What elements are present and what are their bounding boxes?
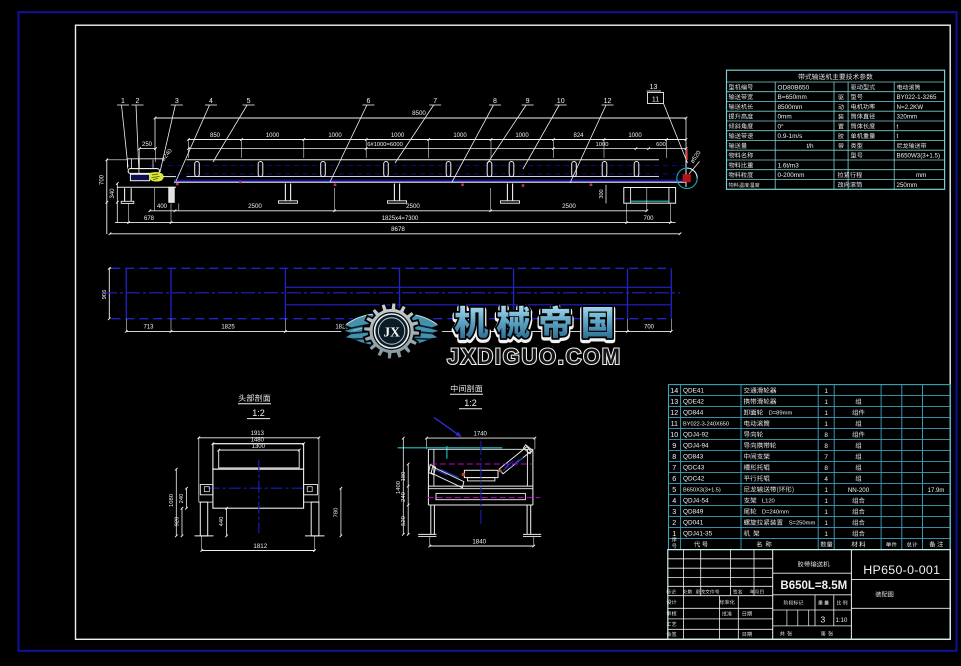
svg-text:QDJ4-54: QDJ4-54: [683, 498, 709, 505]
svg-text:678: 678: [144, 216, 155, 222]
svg-text:8500mm: 8500mm: [778, 104, 803, 111]
svg-text:3: 3: [821, 615, 826, 625]
svg-text:4: 4: [824, 476, 828, 483]
svg-text:1825x4=7300: 1825x4=7300: [382, 216, 419, 222]
svg-text:4: 4: [672, 496, 676, 505]
svg-text:8500: 8500: [412, 110, 426, 117]
svg-text:2500: 2500: [406, 203, 420, 210]
svg-text:6: 6: [366, 98, 370, 105]
svg-text:780: 780: [334, 508, 340, 518]
svg-text:BY022-1-3265: BY022-1-3265: [897, 94, 937, 101]
svg-text:QDC42: QDC42: [683, 476, 705, 483]
svg-text:6#1000=6000: 6#1000=6000: [367, 142, 403, 148]
svg-text:1: 1: [672, 529, 676, 538]
svg-text:HP650-0-001: HP650-0-001: [863, 563, 940, 577]
svg-text:700: 700: [99, 174, 105, 185]
svg-text:QDE42: QDE42: [683, 399, 704, 406]
svg-text:700: 700: [644, 325, 655, 331]
svg-text:QDC43: QDC43: [683, 465, 705, 472]
svg-text:7: 7: [433, 98, 437, 105]
svg-text:9: 9: [526, 98, 530, 105]
svg-text:180: 180: [401, 472, 407, 482]
svg-text:QD844: QD844: [683, 410, 704, 417]
svg-text:1: 1: [824, 487, 828, 494]
svg-text:10: 10: [670, 430, 678, 439]
svg-text:600: 600: [656, 142, 666, 148]
svg-text:240: 240: [179, 494, 185, 504]
svg-text:1000: 1000: [628, 133, 642, 139]
svg-text:N=2.2KW: N=2.2KW: [897, 104, 924, 111]
svg-text:1:10: 1:10: [836, 618, 848, 624]
svg-text:1000: 1000: [391, 133, 405, 139]
svg-text:240: 240: [401, 492, 407, 502]
svg-text:B=650mm: B=650mm: [778, 94, 807, 101]
svg-text:1000: 1000: [328, 133, 342, 139]
svg-text:700: 700: [643, 216, 654, 222]
svg-text:1480: 1480: [251, 438, 265, 444]
svg-text:1825: 1825: [221, 325, 235, 331]
svg-text:2: 2: [672, 518, 676, 527]
svg-text:1: 1: [824, 531, 828, 538]
svg-text:L120: L120: [762, 499, 775, 505]
svg-text:906: 906: [102, 290, 108, 300]
svg-text:JXDIGUO.COM: JXDIGUO.COM: [447, 344, 622, 369]
svg-text:8: 8: [824, 465, 828, 472]
svg-text:12: 12: [604, 98, 612, 105]
svg-text:B650X3(3+1.5): B650X3(3+1.5): [683, 488, 721, 494]
svg-text:QD843: QD843: [683, 454, 704, 461]
svg-text:1: 1: [824, 498, 828, 505]
svg-text:4: 4: [209, 98, 213, 105]
svg-text:250: 250: [142, 142, 153, 148]
svg-text:340: 340: [110, 188, 116, 199]
svg-text:1300: 1300: [252, 444, 266, 450]
svg-text:8: 8: [824, 443, 828, 450]
svg-text:D=240mm: D=240mm: [762, 510, 789, 516]
svg-text:2: 2: [136, 98, 140, 105]
svg-text:250mm: 250mm: [897, 182, 918, 189]
svg-text:1: 1: [824, 388, 828, 395]
svg-text:11: 11: [652, 96, 659, 103]
svg-text:1: 1: [824, 399, 828, 406]
svg-text:0mm: 0mm: [778, 114, 792, 121]
svg-text:1000: 1000: [453, 133, 467, 139]
svg-text:12: 12: [670, 408, 678, 417]
svg-text:2500: 2500: [248, 203, 262, 210]
svg-text:5: 5: [672, 485, 676, 494]
svg-text:0.9-1m/s: 0.9-1m/s: [778, 133, 803, 140]
svg-text:300: 300: [599, 189, 605, 198]
svg-text:8: 8: [672, 452, 676, 461]
svg-text:850: 850: [210, 133, 221, 139]
svg-text:1812: 1812: [253, 543, 267, 550]
svg-text:1913: 1913: [251, 431, 265, 437]
svg-text:1080: 1080: [169, 494, 175, 507]
svg-text:S=250mm: S=250mm: [789, 521, 816, 527]
svg-text:9: 9: [672, 441, 676, 450]
svg-text:t: t: [897, 123, 899, 130]
svg-text:440: 440: [219, 517, 225, 527]
svg-text:320mm: 320mm: [897, 114, 918, 121]
svg-text:1: 1: [824, 509, 828, 516]
svg-text:17.9m: 17.9m: [928, 488, 945, 494]
svg-text:6: 6: [672, 474, 676, 483]
svg-text:1: 1: [824, 410, 828, 417]
svg-text:10: 10: [557, 98, 565, 105]
svg-text:0-200mm: 0-200mm: [778, 172, 805, 179]
svg-text:1000: 1000: [266, 133, 280, 139]
svg-text:QDJ41-35: QDJ41-35: [683, 531, 713, 538]
svg-text:3: 3: [175, 98, 179, 105]
svg-text:8: 8: [824, 432, 828, 439]
svg-text:8678: 8678: [391, 226, 405, 233]
svg-text:520: 520: [401, 516, 407, 526]
svg-text:QD041: QD041: [683, 520, 704, 527]
svg-text:JX: JX: [383, 325, 400, 340]
svg-text:QDJ4-92: QDJ4-92: [683, 432, 709, 439]
svg-text:1840: 1840: [472, 539, 486, 546]
svg-text:8: 8: [493, 98, 497, 105]
svg-text:QDJ4-94: QDJ4-94: [683, 443, 709, 450]
svg-text:3: 3: [672, 507, 676, 516]
svg-text:14: 14: [670, 386, 678, 395]
svg-text:13: 13: [650, 84, 658, 91]
svg-text:QDE41: QDE41: [683, 388, 704, 395]
svg-text:920: 920: [175, 517, 181, 527]
svg-text:13: 13: [670, 397, 678, 406]
svg-text:OD80B650: OD80B650: [778, 84, 810, 91]
svg-text:2500: 2500: [562, 203, 576, 210]
svg-text:7: 7: [672, 463, 676, 472]
svg-text:B650W3(3+1.5): B650W3(3+1.5): [897, 153, 941, 160]
svg-text:mm: mm: [916, 172, 926, 179]
svg-text:1400: 1400: [396, 481, 402, 494]
svg-text:1: 1: [121, 98, 125, 105]
svg-text:713: 713: [143, 325, 154, 331]
svg-text:t/h: t/h: [806, 143, 814, 150]
svg-text:0°: 0°: [778, 122, 785, 130]
svg-text:11: 11: [671, 419, 678, 428]
svg-text:1.6t/m3: 1.6t/m3: [778, 162, 800, 169]
svg-text:1000: 1000: [596, 142, 609, 148]
svg-text:400: 400: [157, 204, 168, 210]
svg-text:BY022-3-240X650: BY022-3-240X650: [683, 422, 729, 428]
svg-text:t: t: [897, 133, 899, 140]
svg-text:1:2: 1:2: [252, 408, 265, 418]
svg-text:QD849: QD849: [683, 509, 704, 516]
svg-text:D=89mm: D=89mm: [769, 411, 793, 417]
svg-text:1740: 1740: [474, 432, 488, 438]
svg-text:B650L=8.5M: B650L=8.5M: [780, 580, 847, 592]
svg-text:1: 1: [824, 421, 828, 428]
svg-text:1:2: 1:2: [464, 398, 477, 408]
svg-text:5: 5: [247, 98, 251, 105]
svg-text:NN-200: NN-200: [848, 487, 870, 494]
svg-text:1: 1: [824, 520, 828, 527]
svg-text:1000: 1000: [515, 133, 529, 139]
svg-text:824: 824: [573, 133, 584, 139]
svg-text:7: 7: [824, 454, 828, 461]
